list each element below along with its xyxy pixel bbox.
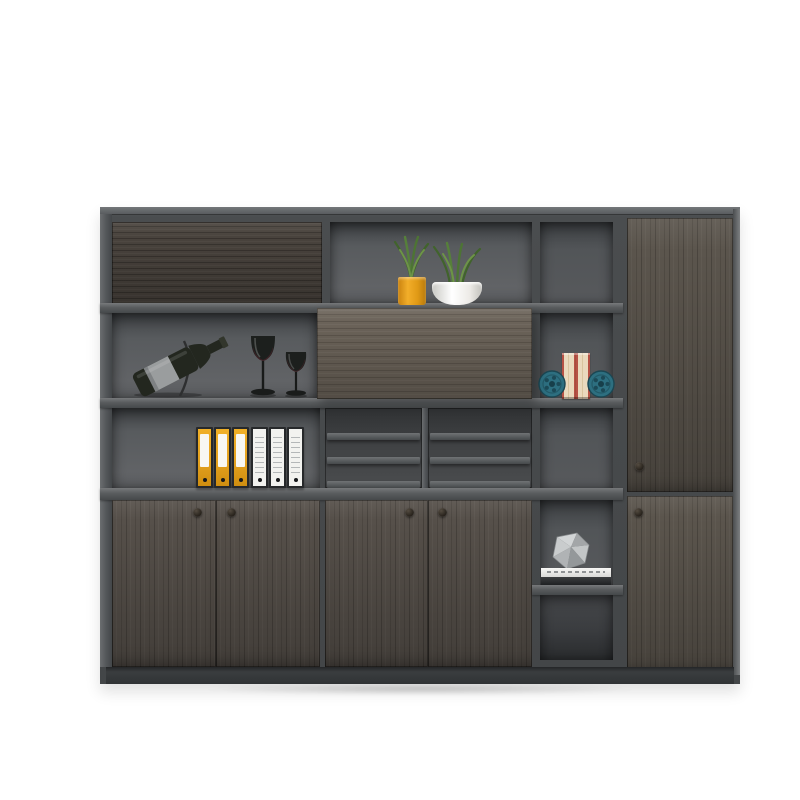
open-cell-1 — [540, 222, 613, 303]
top-flap-door — [112, 222, 322, 305]
stacked-book-white — [541, 568, 611, 577]
open-cell-5 — [540, 595, 613, 660]
tall-cabinet-upper-door — [627, 218, 733, 492]
wine-glass-large — [246, 335, 280, 398]
reel-bookend-left — [538, 370, 566, 398]
lower-door-1 — [112, 500, 216, 667]
open-cell-3 — [540, 408, 613, 488]
plinth-base — [106, 667, 734, 684]
lower-door-4 — [428, 500, 532, 667]
book-spine-text — [547, 571, 605, 573]
door-knob — [405, 508, 414, 517]
tall-cabinet-knob — [634, 508, 643, 517]
lower-door-2 — [216, 500, 320, 667]
grass-plant-icon — [426, 241, 488, 285]
stacked-book-dark — [541, 577, 611, 585]
gem-ornament — [547, 531, 593, 571]
plant-white-pot — [426, 241, 488, 305]
door-knob — [227, 508, 236, 517]
tall-cabinet-lower-door — [627, 496, 733, 673]
cabinet-top-surface — [100, 207, 740, 215]
shelf-rail-3 — [100, 488, 623, 500]
tall-cabinet-knob — [635, 462, 644, 471]
rack-slat — [327, 457, 420, 464]
yellow-binder — [214, 427, 231, 488]
binder-group — [196, 427, 306, 490]
office-cabinet — [100, 207, 740, 684]
door-knob — [193, 508, 202, 517]
cabinet-left-stile — [100, 214, 112, 667]
rack-slat — [430, 481, 530, 488]
reel-bookend-right — [587, 370, 615, 398]
shelf-rail-2 — [100, 398, 623, 408]
yellow-binder — [232, 427, 249, 488]
rack-slat — [327, 481, 420, 488]
magazine-rack-left — [325, 408, 422, 488]
wine-bottle — [120, 325, 238, 398]
binder-label — [200, 434, 209, 467]
white-binder — [251, 427, 268, 488]
shelf-rail-4 — [532, 585, 623, 595]
yellow-pot — [398, 277, 426, 305]
door-knob — [438, 508, 447, 517]
lower-door-3 — [325, 500, 428, 667]
product-photo-canvas — [0, 0, 800, 800]
sliding-panel-door — [317, 308, 532, 399]
rack-slat — [430, 457, 530, 464]
wine-glass-small — [282, 351, 310, 398]
white-binder — [287, 427, 304, 488]
magazine-rack-right — [428, 408, 532, 488]
binder-hole — [203, 478, 207, 482]
white-binder — [269, 427, 286, 488]
yellow-binder — [196, 427, 213, 488]
rack-slat — [430, 433, 530, 440]
cabinet-right-edge — [733, 209, 740, 675]
rack-slat — [327, 433, 420, 440]
white-bowl-pot — [432, 282, 482, 305]
